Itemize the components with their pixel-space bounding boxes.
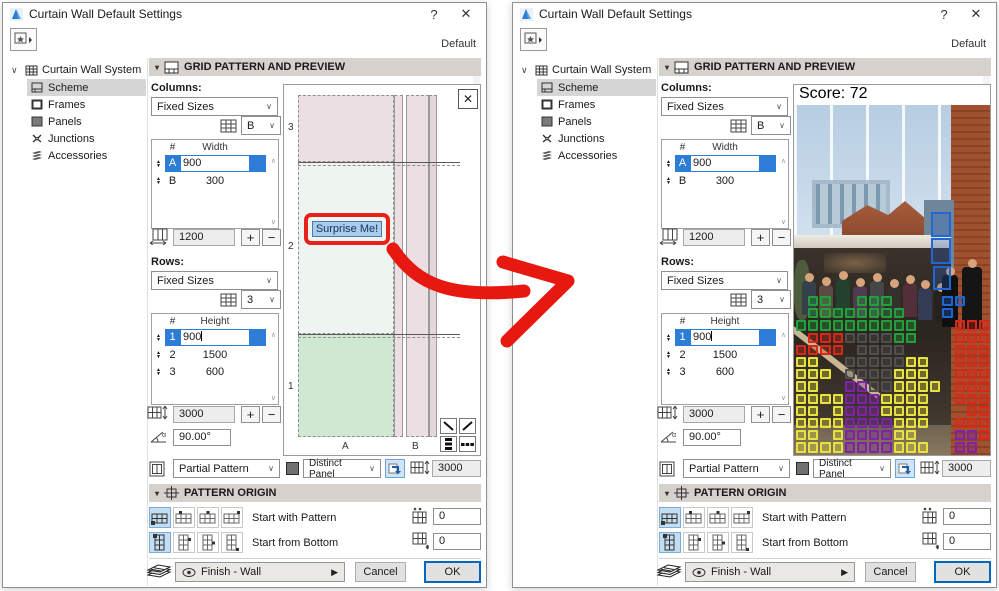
row-axis-label: 3	[288, 122, 294, 133]
help-button[interactable]: ?	[928, 4, 960, 24]
sidebar-item-junctions[interactable]: Junctions	[27, 130, 146, 147]
panel-option-select[interactable]: Distinct Panel∨	[813, 459, 891, 478]
offset-x-field[interactable]: 0	[433, 508, 481, 525]
sidebar-root-label: Curtain Wall System	[42, 64, 141, 76]
sidebar-item-label: Panels	[558, 116, 592, 128]
ok-button[interactable]: OK	[424, 561, 481, 583]
sidebar-item-label: Panels	[48, 116, 82, 128]
pattern-height-icon	[920, 460, 940, 476]
preview-close-button[interactable]: ✕	[458, 89, 478, 109]
col-axis-label: A	[342, 441, 349, 452]
finish-display-select[interactable]: Finish - Wall ▶	[175, 562, 345, 582]
sidebar-tree: ∨ Curtain Wall System Scheme Frames Pane…	[519, 61, 656, 164]
col-header-width: Width	[180, 142, 250, 153]
sidebar-item-label: Accessories	[48, 150, 107, 162]
origin-center-left-button[interactable]	[683, 507, 705, 528]
svg-text:α: α	[672, 432, 676, 439]
row-id: B	[165, 175, 180, 187]
cancel-button[interactable]: Cancel	[355, 562, 406, 582]
collapse-triangle-icon[interactable]: ▾	[155, 489, 159, 498]
total-height-icon	[657, 405, 679, 421]
surprise-highlight-ring: Surprise Me!	[304, 213, 390, 245]
junctions-icon	[541, 133, 553, 144]
person	[903, 283, 917, 317]
origin-icon	[164, 486, 179, 500]
junctions-icon	[31, 133, 43, 144]
scroll-down-icon[interactable]: ∨	[271, 218, 276, 226]
angle-field[interactable]: 90.00°	[173, 429, 231, 446]
row-axis-label: 2	[288, 241, 294, 252]
rows-scheme-value: Fixed Sizes	[157, 275, 214, 287]
pen-set-icon	[656, 563, 682, 582]
angle-field[interactable]: 90.00°	[683, 429, 741, 446]
offset-x-field[interactable]: 0	[943, 508, 991, 525]
panel-divider	[147, 58, 148, 586]
middle-bottom-start-button[interactable]	[683, 532, 705, 553]
scroll-down-icon[interactable]: ∨	[271, 394, 276, 402]
sidebar-item-panels[interactable]: Panels	[537, 113, 656, 130]
footer-divider	[149, 558, 481, 559]
pattern-option-value: Partial Pattern	[689, 463, 759, 475]
table-row[interactable]: ▲▼ A 900	[662, 155, 788, 172]
columns-scheme-value: Fixed Sizes	[157, 101, 214, 113]
origin-right-button[interactable]	[731, 507, 753, 528]
row-id: 3	[165, 366, 180, 378]
height-input[interactable]: 900	[690, 329, 760, 346]
pattern-icon	[659, 461, 675, 477]
top-start-button[interactable]	[221, 532, 243, 553]
photo-ground	[794, 425, 951, 456]
grid-system-icon	[535, 65, 548, 76]
sidebar-item-label: Scheme	[558, 82, 598, 94]
transfer-settings-button[interactable]	[385, 459, 405, 478]
columns-scheme-select[interactable]: Fixed Sizes∨	[661, 97, 788, 116]
title-bar: Curtain Wall Default Settings ? ✕	[513, 3, 996, 25]
row-spinner-icon[interactable]: ▲▼	[152, 160, 165, 168]
row-value: 600	[690, 366, 760, 378]
pattern-option-select[interactable]: Partial Pattern∨	[683, 459, 790, 478]
columns-total-field: 1200	[683, 229, 745, 246]
columns-table: #Width ▲▼ A 900 ▲▼ B 300 ∧ ∨	[151, 139, 279, 229]
chevron-down-icon: ∨	[775, 121, 785, 130]
add-row-button[interactable]: +	[241, 406, 260, 423]
offset-y-field[interactable]: 0	[943, 533, 991, 550]
horizontal-pattern-button[interactable]	[459, 436, 476, 452]
columns-table: #Width ▲▼ A 900 ▲▼ B 300 ∧ ∨	[661, 139, 789, 229]
start-from-bottom-label: Start from Bottom	[762, 537, 848, 549]
panel-option-value: Distinct Panel	[309, 458, 365, 480]
collapse-triangle-icon[interactable]: ▾	[665, 63, 669, 72]
sidebar-item-accessories[interactable]: Accessories	[27, 147, 146, 164]
row-selection-tail	[760, 329, 776, 346]
row-selection-tail	[250, 329, 266, 346]
col-header-height: Height	[690, 316, 760, 327]
rows-table: #Height ▲▼ 1 900 ▲▼ 2 1500 ▲▼ 3 600 ∧ ∨	[151, 313, 279, 405]
person	[918, 288, 932, 320]
diagonal-slash-button[interactable]	[459, 418, 476, 434]
person	[887, 287, 901, 319]
rows-label: Rows:	[661, 256, 694, 268]
window-title: Curtain Wall Default Settings	[539, 7, 692, 21]
grid-preview-icon	[674, 61, 689, 74]
row-value: 300	[690, 175, 760, 187]
pen-set-icon	[146, 563, 172, 582]
table-row[interactable]: ▲▼ 3 600	[662, 363, 788, 380]
preview-colB-frame-strip[interactable]	[429, 95, 437, 437]
rows-table: #Height ▲▼ 1 900 ▲▼ 2 1500 ▲▼ 3 600 ∧ ∨	[661, 313, 789, 405]
section-title: GRID PATTERN AND PREVIEW	[184, 61, 345, 73]
sidebar-item-label: Junctions	[48, 133, 94, 145]
origin-left-button[interactable]	[149, 507, 171, 528]
finish-label: Finish - Wall	[711, 566, 771, 578]
accessories-icon	[541, 150, 553, 161]
sidebar-item-scheme[interactable]: Scheme	[27, 79, 146, 96]
pattern-height-field: 3000	[942, 460, 991, 477]
vertical-pattern-button[interactable]	[440, 436, 457, 452]
table-row[interactable]: ▲▼ 3 600	[152, 363, 278, 380]
row-spinner-icon[interactable]: ▲▼	[152, 351, 165, 359]
row-id: 1	[165, 329, 180, 346]
columns-ref-select[interactable]: B∨	[751, 116, 791, 135]
row-spinner-icon[interactable]: ▲▼	[662, 160, 675, 168]
section-title: GRID PATTERN AND PREVIEW	[694, 61, 855, 73]
toolbar: Default	[3, 25, 486, 57]
middle-start-button[interactable]	[707, 532, 729, 553]
sidebar-item-label: Frames	[48, 99, 85, 111]
row-boundary-line	[298, 334, 460, 335]
row-selection-tail	[760, 155, 776, 172]
sidebar-item-scheme[interactable]: Scheme	[537, 79, 656, 96]
sidebar-item-accessories[interactable]: Accessories	[537, 147, 656, 164]
favorites-star-icon	[14, 32, 33, 48]
rows-ref-select[interactable]: 3∨	[751, 290, 791, 309]
pattern-option-value: Partial Pattern	[179, 463, 249, 475]
rows-ref-value: 3	[757, 294, 763, 306]
person	[802, 281, 816, 315]
col-header-num: #	[675, 316, 690, 327]
row-id: B	[675, 175, 690, 187]
row-boundary-dashed	[298, 165, 460, 166]
rows-total-field: 3000	[683, 406, 745, 423]
settings-dialog-after: Curtain Wall Default Settings ? ✕ Defaul…	[512, 2, 997, 588]
columns-ref-value: B	[247, 120, 254, 132]
preview-row2-colA-panel[interactable]	[298, 162, 394, 334]
photo-entrance-light	[824, 253, 886, 273]
person	[942, 275, 958, 327]
row-id: 1	[675, 329, 690, 346]
transfer-arrow-icon	[898, 462, 912, 475]
settings-dialog-before: Curtain Wall Default Settings ? ✕ Defaul…	[2, 2, 487, 588]
collapse-triangle-icon[interactable]: ▾	[155, 63, 159, 72]
columns-ref-select[interactable]: B∨	[241, 116, 281, 135]
sidebar-item-label: Accessories	[558, 150, 617, 162]
row-boundary-dashed	[298, 337, 460, 338]
rows-ref-value: 3	[247, 294, 253, 306]
toolbar: Default	[513, 25, 996, 57]
bottom-start-button[interactable]	[149, 532, 171, 553]
col-header-num: #	[675, 142, 690, 153]
transfer-settings-button[interactable]	[895, 459, 915, 478]
chevron-down-icon: ∨	[265, 295, 275, 304]
table-row[interactable]: ▲▼ B 300	[662, 172, 788, 189]
columns-scheme-select[interactable]: Fixed Sizes∨	[151, 97, 278, 116]
scroll-up-icon[interactable]: ∧	[271, 157, 276, 165]
row-id: 3	[675, 366, 690, 378]
add-row-button[interactable]: +	[751, 406, 770, 423]
start-from-bottom-label: Start from Bottom	[252, 537, 338, 549]
collapse-triangle-icon[interactable]: ▾	[665, 489, 669, 498]
person	[819, 285, 833, 317]
sidebar-tree: ∨ Curtain Wall System Scheme Frames Pane…	[9, 61, 146, 164]
flyout-arrow-icon: ▶	[331, 567, 338, 578]
start-with-pattern-label: Start with Pattern	[762, 512, 846, 524]
total-width-icon	[149, 228, 169, 245]
expand-chevron-icon[interactable]: ∨	[521, 65, 531, 76]
favorites-button[interactable]	[10, 28, 37, 51]
chevron-down-icon: ∨	[265, 121, 275, 130]
photo-canopy	[794, 235, 951, 248]
grid-reference-icon	[220, 293, 237, 307]
remove-column-button[interactable]: −	[772, 229, 791, 246]
row-boundary-line	[298, 162, 460, 163]
panel-option-value: Distinct Panel	[819, 458, 875, 480]
scheme-icon	[541, 82, 553, 93]
chevron-down-icon: ∨	[772, 276, 782, 285]
panels-icon	[31, 116, 43, 127]
row-spinner-icon[interactable]: ▲▼	[662, 334, 675, 342]
col-header-width: Width	[690, 142, 760, 153]
cancel-button[interactable]: Cancel	[865, 562, 916, 582]
remove-row-button[interactable]: −	[262, 406, 281, 423]
scroll-down-icon[interactable]: ∨	[781, 394, 786, 402]
row-spinner-icon[interactable]: ▲▼	[662, 351, 675, 359]
sidebar-item-frames[interactable]: Frames	[27, 96, 146, 113]
chevron-down-icon: ∨	[262, 102, 272, 111]
frames-icon	[31, 99, 43, 110]
person	[836, 279, 850, 315]
row-spinner-icon[interactable]: ▲▼	[152, 177, 165, 185]
sidebar-item-curtain-wall-system[interactable]: ∨ Curtain Wall System	[9, 61, 146, 79]
rows-scheme-select[interactable]: Fixed Sizes∨	[151, 271, 278, 290]
grid-reference-icon	[730, 293, 747, 307]
offset-x-icon	[921, 507, 939, 525]
chevron-down-icon: ∨	[775, 295, 785, 304]
columns-total-field: 1200	[173, 229, 235, 246]
person	[870, 281, 884, 316]
origin-left-button[interactable]	[659, 507, 681, 528]
app-logo-icon	[520, 8, 533, 21]
table-row[interactable]: ▲▼ 1 900	[152, 329, 278, 346]
section-pattern-origin[interactable]: ▾ PATTERN ORIGIN	[149, 484, 481, 502]
row-spinner-icon[interactable]: ▲▼	[152, 368, 165, 376]
offset-x-icon	[411, 507, 429, 525]
origin-center-button[interactable]	[707, 507, 729, 528]
ok-button[interactable]: OK	[934, 561, 991, 583]
width-input[interactable]: 900	[690, 155, 760, 172]
origin-icon	[674, 486, 689, 500]
add-column-button[interactable]: +	[751, 229, 770, 246]
top-start-button[interactable]	[731, 532, 753, 553]
grid-system-icon	[25, 65, 38, 76]
width-input[interactable]: 900	[180, 155, 250, 172]
pattern-height-field: 3000	[432, 460, 481, 477]
row-spinner-icon[interactable]: ▲▼	[662, 368, 675, 376]
table-row[interactable]: ▲▼ 1 900	[662, 329, 788, 346]
columns-label: Columns:	[151, 82, 202, 94]
sidebar-item-label: Scheme	[48, 82, 88, 94]
chevron-down-icon: ∨	[772, 102, 782, 111]
offset-y-icon	[921, 532, 939, 550]
total-width-icon	[659, 228, 679, 245]
svg-text:α: α	[162, 432, 166, 439]
row-value: 1500	[690, 349, 760, 361]
close-button[interactable]: ✕	[960, 4, 992, 24]
finish-display-select[interactable]: Finish - Wall ▶	[685, 562, 855, 582]
panel-swatch[interactable]	[286, 462, 299, 475]
section-title: PATTERN ORIGIN	[694, 487, 786, 499]
eye-icon	[692, 568, 706, 577]
finish-label: Finish - Wall	[201, 566, 261, 578]
panels-icon	[541, 116, 553, 127]
columns-ref-value: B	[757, 120, 764, 132]
row-id: 2	[165, 349, 180, 361]
scroll-down-icon[interactable]: ∨	[781, 218, 786, 226]
chevron-down-icon: ∨	[264, 464, 274, 473]
row-axis-label: 1	[288, 381, 294, 392]
total-height-icon	[147, 405, 169, 421]
close-button[interactable]: ✕	[450, 4, 482, 24]
sidebar-item-frames[interactable]: Frames	[537, 96, 656, 113]
columns-table-header: #Width	[662, 140, 788, 155]
preview-colB-panel[interactable]	[406, 95, 429, 437]
scheme-icon	[31, 82, 43, 93]
height-input[interactable]: 900	[180, 329, 250, 346]
section-grid-pattern[interactable]: ▾ GRID PATTERN AND PREVIEW	[659, 58, 991, 76]
surprise-me-button[interactable]: Surprise Me!	[312, 221, 382, 237]
columns-table-header: #Width	[152, 140, 278, 155]
row-value: 600	[180, 366, 250, 378]
preview-row1-colA-panel[interactable]	[298, 334, 394, 437]
default-label[interactable]: Default	[441, 38, 476, 50]
rows-scheme-select[interactable]: Fixed Sizes∨	[661, 271, 788, 290]
pattern-option-select[interactable]: Partial Pattern∨	[173, 459, 280, 478]
angle-icon: α	[659, 429, 679, 444]
origin-center-button[interactable]	[197, 507, 219, 528]
preview-pane: Score: 72	[793, 84, 991, 456]
col-header-num: #	[165, 316, 180, 327]
section-title: PATTERN ORIGIN	[184, 487, 276, 499]
grid-reference-icon	[220, 119, 237, 133]
chevron-down-icon: ∨	[262, 276, 272, 285]
table-row[interactable]: ▲▼ A 900	[152, 155, 278, 172]
row-id: A	[675, 155, 690, 172]
panel-divider	[657, 58, 658, 586]
col-axis-label: B	[412, 441, 419, 452]
sidebar-item-curtain-wall-system[interactable]: ∨ Curtain Wall System	[519, 61, 656, 79]
row-id: A	[165, 155, 180, 172]
result-photo: Score: 72	[794, 85, 990, 455]
chevron-down-icon: ∨	[875, 464, 885, 473]
table-row[interactable]: ▲▼ 2 1500	[152, 346, 278, 363]
row-id: 2	[675, 349, 690, 361]
sidebar-item-label: Junctions	[558, 133, 604, 145]
person-black-shirt	[962, 267, 982, 329]
start-with-pattern-label: Start with Pattern	[252, 512, 336, 524]
add-column-button[interactable]: +	[241, 229, 260, 246]
sidebar-item-junctions[interactable]: Junctions	[537, 130, 656, 147]
bottom-start-button[interactable]	[659, 532, 681, 553]
table-row[interactable]: ▲▼ B 300	[152, 172, 278, 189]
rows-ref-select[interactable]: 3∨	[241, 290, 281, 309]
middle-start-button[interactable]	[197, 532, 219, 553]
scroll-up-icon[interactable]: ∧	[271, 331, 276, 339]
chevron-down-icon: ∨	[365, 464, 375, 473]
app-logo-icon	[10, 8, 23, 21]
grid-preview-icon	[164, 61, 179, 74]
score-label: Score: 72	[794, 85, 990, 105]
sidebar-item-panels[interactable]: Panels	[27, 113, 146, 130]
rows-label: Rows:	[151, 256, 184, 268]
panel-option-select[interactable]: Distinct Panel∨	[303, 459, 381, 478]
rows-scheme-value: Fixed Sizes	[667, 275, 724, 287]
scroll-up-icon[interactable]: ∧	[781, 157, 786, 165]
window-title: Curtain Wall Default Settings	[29, 7, 182, 21]
footer-divider	[659, 558, 991, 559]
pattern-height-icon	[410, 460, 430, 476]
table-row[interactable]: ▲▼ 2 1500	[662, 346, 788, 363]
remove-row-button[interactable]: −	[772, 406, 791, 423]
columns-label: Columns:	[661, 82, 712, 94]
preview-mullion-strip[interactable]	[394, 95, 403, 437]
eye-icon	[182, 568, 196, 577]
sidebar-root-label: Curtain Wall System	[552, 64, 651, 76]
expand-chevron-icon[interactable]: ∨	[11, 65, 21, 76]
row-value: 1500	[180, 349, 250, 361]
middle-bottom-start-button[interactable]	[173, 532, 195, 553]
diagonal-backslash-button[interactable]	[440, 418, 457, 434]
transfer-arrow-icon	[388, 462, 402, 475]
origin-center-left-button[interactable]	[173, 507, 195, 528]
preview-pane: ✕ 3 2 1 A B Surprise Me!	[283, 84, 481, 456]
col-header-num: #	[165, 142, 180, 153]
preview-row3-colA-panel[interactable]	[298, 95, 394, 162]
row-value: 300	[180, 175, 250, 187]
rows-table-header: #Height	[662, 314, 788, 329]
row-spinner-icon[interactable]: ▲▼	[152, 334, 165, 342]
columns-scheme-value: Fixed Sizes	[667, 101, 724, 113]
panel-swatch[interactable]	[796, 462, 809, 475]
row-spinner-icon[interactable]: ▲▼	[662, 177, 675, 185]
offset-y-icon	[411, 532, 429, 550]
default-label[interactable]: Default	[951, 38, 986, 50]
frames-icon	[541, 99, 553, 110]
rows-table-header: #Height	[152, 314, 278, 329]
origin-right-button[interactable]	[221, 507, 243, 528]
flyout-arrow-icon: ▶	[841, 567, 848, 578]
offset-y-field[interactable]: 0	[433, 533, 481, 550]
pattern-icon	[149, 461, 165, 477]
col-header-height: Height	[180, 316, 250, 327]
help-button[interactable]: ?	[418, 4, 450, 24]
row-selection-tail	[250, 155, 266, 172]
title-bar: Curtain Wall Default Settings ? ✕	[3, 3, 486, 25]
scroll-up-icon[interactable]: ∧	[781, 331, 786, 339]
section-pattern-origin[interactable]: ▾ PATTERN ORIGIN	[659, 484, 991, 502]
photo-railing2	[798, 353, 908, 358]
section-grid-pattern[interactable]: ▾ GRID PATTERN AND PREVIEW	[149, 58, 481, 76]
favorites-button[interactable]	[520, 28, 547, 51]
remove-column-button[interactable]: −	[262, 229, 281, 246]
